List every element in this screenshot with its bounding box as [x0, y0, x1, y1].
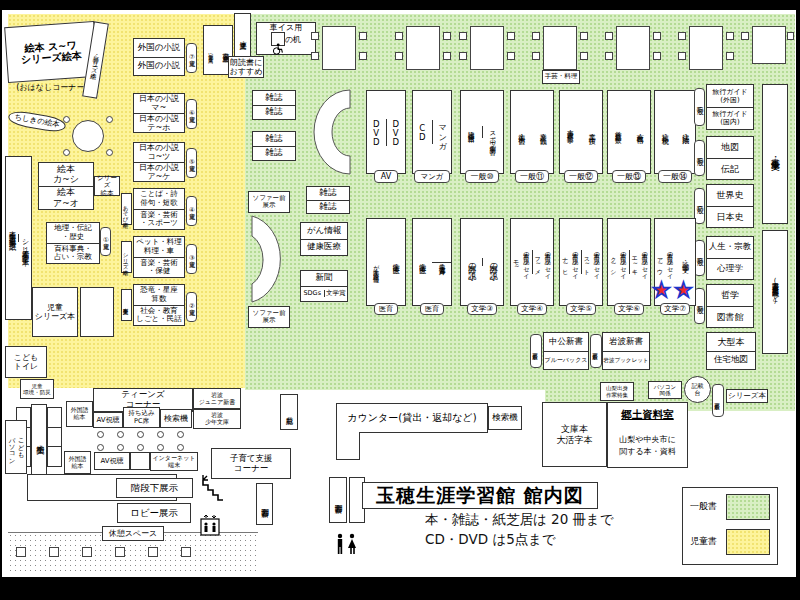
chair	[395, 52, 403, 60]
shelf-iwanami-shinsho: 岩波新書 岩波ブックレット	[602, 332, 650, 370]
shelf-row	[48, 446, 61, 466]
round-table	[72, 120, 104, 152]
tag-ippan15: 一般⑮	[694, 88, 705, 126]
shelf-large-picture-books: 大型絵本	[31, 404, 47, 476]
shelf-row: 中公新書	[544, 333, 588, 351]
pc-related-shelf: パソコン 関係	[648, 381, 682, 399]
shelf-dvd: DVD DVD	[366, 90, 406, 174]
shelf-environment-disaster: 児童 環境・防災	[20, 379, 54, 399]
local-history-title: 郷土資料室	[608, 403, 687, 425]
shelf-series-kamishibai: 紙芝居・大型紙芝居・大型絵本 シリーズ本・点字絵本・布絵本・	[5, 156, 32, 320]
rest-table	[82, 547, 92, 557]
shelf-column: DVD	[367, 119, 386, 146]
rest-table	[148, 547, 158, 557]
shelf-jp-novels-ma: 日本の小説 マ~ 日本の小説 テ~ホ	[133, 93, 185, 133]
map-note-1: 本・雑誌・紙芝居は 20 冊まで	[425, 511, 614, 529]
label-bungaku5: 文学⑤	[566, 303, 596, 315]
shelf-row: 大型本	[707, 333, 755, 351]
shelf-column: がん情報・医療・医学	[367, 259, 386, 265]
chair	[653, 32, 661, 40]
chair	[605, 32, 613, 40]
shelf-magazines: 雑誌 雑誌	[252, 131, 296, 161]
shelf-series-books: シリーズ本	[726, 389, 768, 403]
reading-table	[322, 26, 356, 70]
label-ippan11: 一般⑪	[515, 170, 549, 183]
shelf-row: 旅行ガイド (外国)	[707, 85, 753, 107]
shelf-cancer-health: がん情報 健康医療	[300, 222, 348, 256]
tag-ippan-shinsho: 一般新書	[590, 334, 602, 368]
reading-table	[543, 26, 577, 70]
local-history-desc: 山梨や中央市に 関する本・資料	[608, 425, 687, 467]
tag-jido6: 児童⑥	[186, 99, 197, 129]
chair	[459, 52, 467, 60]
label-ippan10: 一般⑩	[465, 170, 499, 183]
chair	[787, 32, 794, 40]
stool	[137, 431, 144, 438]
shelf-column: 日本の小説・エッセイ エ~キ	[629, 250, 651, 274]
shelf-tax-politics: 税金・福祉 政治・法律	[654, 90, 696, 174]
tag-asobi-ehon: あそび絵本	[121, 193, 132, 225]
bungakusho-label: 文学賞	[324, 290, 348, 297]
kids-toilet: こども トイレ	[5, 346, 47, 378]
shelf-reference-books: 参考図書(図鑑・辞書など)	[762, 230, 788, 354]
label-ippan12: 一般⑫	[564, 170, 598, 183]
label-iiku: 医育	[374, 303, 398, 315]
internet-terminal: インターネット 端末	[150, 452, 198, 471]
shelf-children-series: 児童 シリーズ本	[32, 287, 78, 337]
local-history-room: 郷土資料室 山梨や中央市に 関する本・資料	[607, 402, 688, 468]
craft-cooking-note: 手芸・料理	[542, 70, 580, 84]
shelf-jp-novels-ko: 日本の小説 コ~ツ 日本の小説 ア~ケ	[133, 142, 185, 182]
legend-children-label: 児童書	[690, 535, 717, 548]
stool	[97, 431, 104, 438]
shelf-row	[48, 408, 61, 427]
chair	[395, 32, 403, 40]
tag-jido7: 児童⑦	[186, 43, 197, 73]
av-seat: AV視聴	[94, 452, 130, 470]
shelf-column: 日本の小説・エッセイ ス~ト	[581, 250, 603, 274]
shelf-literature-collection: 文学全集・叢書	[762, 84, 788, 224]
counter-leg	[336, 432, 360, 460]
label-bungaku4: 文学④	[517, 303, 547, 315]
shelf-row: 住宅地図	[707, 351, 755, 370]
tag-series-ehon-2: シリーズ 絵本	[94, 176, 120, 196]
shelf-row: 絵本 ア~オ	[39, 186, 93, 210]
shelf-iwanami-junior: 岩波 ジュニア新書	[193, 388, 241, 409]
shelf-row: 日本の小説 コ~ツ	[134, 143, 184, 162]
chair	[580, 52, 588, 60]
sofa-crescent	[246, 212, 290, 306]
shelf-row: ペット・料理 料理・車	[134, 237, 184, 257]
shelf-new-books: 新刊図書	[256, 483, 273, 525]
shelf-row: 社会・教育 しごと・民話	[134, 305, 184, 326]
shelf-column: シリーズ本・点字絵本・布絵本・	[18, 234, 31, 243]
shelf-row: 雑誌	[307, 187, 349, 200]
wheelchair-icon	[271, 32, 285, 46]
shelf-words-poetry: ことば・詩 俳句・短歌 音楽・芸術 ・スポーツ	[133, 188, 185, 230]
shelf-column: CD	[413, 123, 432, 141]
recommended-readalouds: 朗読書に おすすめ	[228, 56, 264, 78]
wheelchair-desk-label2: の机	[285, 35, 301, 44]
shelf-foreign-novels-children: 外国の小説 外国の小説	[133, 38, 185, 76]
seat-box	[130, 452, 150, 470]
chair	[507, 52, 515, 60]
shelf-row: 健康医療	[301, 239, 347, 256]
shelf-travel-guides: 旅行ガイド (外国) 旅行ガイド (国内)	[706, 84, 754, 130]
shelf-science-education: 数学・自然科学 民俗・教育	[607, 90, 651, 174]
byod-pc-seat: 持ち込み PC席	[123, 407, 160, 428]
shelf-craft-tech: 手芸・料理・家事 技術・工業	[559, 90, 603, 174]
shelf-jp-essay-mo: 日本の小説・エッセイ モ~ 日本の小説・エッセイ フ~メ	[510, 218, 554, 306]
writing-stand: 記載 台	[684, 376, 711, 403]
shelf-foreign-novels: 外国の小説 外国の小説	[460, 218, 504, 306]
search-terminal: 検索機	[160, 409, 192, 428]
shelf-row: ことば・詩 俳句・短歌	[134, 189, 184, 209]
shelf-foreign-picture-books: 外国語 絵本	[66, 401, 93, 427]
shelf-magazines: 雑誌 雑誌	[252, 90, 296, 120]
stool	[177, 444, 184, 451]
elevator-icon	[200, 514, 220, 536]
chair	[678, 32, 686, 40]
chair	[63, 116, 70, 123]
shelf-geography-history: 地理・伝記 ・歴史 百科事典・ 占い・宗教	[46, 222, 100, 264]
writing-stand-2: 記載台	[280, 394, 298, 430]
shelf-philosophy-library: 哲学 図書館	[706, 284, 754, 328]
chair	[443, 52, 451, 60]
label-bungaku6: 文学⑥	[614, 303, 644, 315]
chair	[532, 52, 540, 60]
stool	[177, 431, 184, 438]
shelf-row: 岩波ブックレット	[603, 351, 649, 370]
tag-ippan16: 一般⑯	[694, 140, 705, 176]
shelf-column: 外国の小説	[461, 258, 482, 266]
shelf-column: 外国の小説	[482, 258, 504, 266]
shelf-column: 日本の小説・エッセイ モ~	[511, 250, 532, 274]
chair	[605, 52, 613, 60]
shelf-cd-manga: CD マンガ	[412, 90, 452, 174]
legend-general-label: 一般書	[690, 500, 717, 513]
shelf-dino-math: 恐竜・星座 算数 社会・教育 しごと・民話	[133, 284, 185, 326]
chair	[459, 32, 467, 40]
shelf-cancer-medical: がん情報・医療・医学 医療・医学	[366, 218, 406, 306]
chair	[359, 52, 367, 60]
shelf-row: 日本の小説 ア~ケ	[134, 162, 184, 182]
chair	[741, 32, 749, 40]
shelf-row: 雑誌	[253, 105, 295, 120]
shelf-row: 外国の小説	[134, 57, 184, 76]
shelf-row: 雑誌	[253, 91, 295, 105]
shelf-column: 日本の小説・エッセイ ナ~ヒ	[560, 250, 581, 274]
label-manga: マンガ	[414, 170, 450, 183]
shelf-children-bunko: 児童文庫	[234, 13, 251, 61]
tag-jido4: 児童④	[186, 196, 197, 226]
label-ippan14: 一般⑭	[658, 170, 692, 183]
chair	[63, 149, 70, 156]
reading-table	[406, 26, 440, 70]
search-terminal: 検索機	[488, 406, 522, 430]
star-marker: ★	[674, 280, 693, 301]
shelf-column: 日本の小説・エッセイ ク~シ	[608, 250, 629, 274]
chair	[311, 52, 319, 60]
tag-jido2: 児童②	[186, 292, 197, 322]
shelf-picture-books-main: 絵本 ス~ワ シリーズ絵本	[4, 21, 98, 83]
sofa-crescent	[312, 86, 354, 178]
reading-table	[752, 26, 786, 64]
letterbox-left	[0, 0, 2, 600]
letterbox-bottom	[0, 577, 800, 600]
shelf-row: 旅行ガイド (国内)	[707, 107, 753, 130]
shelf-maps-biography: 地図 伝記	[706, 136, 754, 180]
tag-jido3: 児童③	[186, 244, 197, 274]
map-note-2: CD・DVD は5点まで	[425, 531, 556, 549]
legend-general-swatch	[726, 494, 770, 520]
under-stairs-display: 階段下展示	[116, 478, 193, 498]
star-marker: ★	[652, 280, 671, 301]
shelf-column: スポーツ・音楽・演劇	[482, 126, 504, 138]
rest-table	[49, 547, 59, 557]
label-iiku: 医育	[420, 303, 444, 315]
shelf-row: 百科事典・ 占い・宗教	[47, 243, 99, 264]
sofa-front-display: ソファー前 展示	[248, 191, 290, 213]
legend-children-swatch	[726, 529, 770, 555]
shelf-row: 伝記	[707, 158, 753, 180]
shelf-world-japan-history: 世界史 日本史	[706, 184, 754, 228]
shelf-column: DVD	[386, 119, 406, 146]
reading-table	[616, 26, 650, 70]
shelf-row: 外国の小説	[134, 39, 184, 57]
display-shelves	[80, 287, 114, 337]
tag-series-ehon: シリーズ絵本	[121, 241, 132, 273]
map-title: 玉穂生涯学習館 館内図	[362, 482, 598, 509]
shelf-row: 心理学	[707, 258, 753, 280]
stool	[97, 444, 104, 451]
label-bungaku3: 文学③	[467, 303, 497, 315]
shelf-pets-cooking: ペット・料理 料理・車 音楽・芸術 ・保健	[133, 236, 185, 278]
shelf-jp-essay-na: 日本の小説・エッセイ ナ~ヒ 日本の小説・エッセイ ス~ト	[559, 218, 603, 306]
rest-table	[181, 547, 191, 557]
shelf-row: 哲学	[707, 285, 753, 306]
chair	[443, 32, 451, 40]
chair	[106, 116, 113, 123]
shelf-foreign-picture-books: 外国語 絵本	[64, 451, 91, 474]
shelf-row: 雑誌	[253, 146, 295, 161]
shelf-row: 地図	[707, 137, 753, 158]
sdgs-label: SDGs	[301, 290, 324, 297]
rest-table	[115, 547, 125, 557]
chair	[507, 32, 515, 40]
shelf-column-split: 洋書 育児・医学	[432, 262, 452, 263]
shelf-row: 日本の小説 マ~	[134, 94, 184, 113]
chair	[532, 32, 540, 40]
shelf-row: 人生・宗教	[707, 237, 753, 258]
shelf-column: 日本の小説・エッセイ ア~ウ	[655, 250, 675, 274]
chair	[311, 32, 319, 40]
tag-ippan-shinsho: 一般新書	[530, 334, 542, 368]
shelf-row: 新聞	[301, 271, 347, 286]
shelf-ehon-ka-shi: 絵本 カ~シ 絵本 ア~オ	[38, 162, 94, 210]
stool	[117, 431, 124, 438]
shelf-row: 絵本 カ~シ	[39, 163, 93, 186]
shelf-row: 雑誌	[307, 200, 349, 214]
chair	[359, 32, 367, 40]
stool	[157, 444, 164, 451]
shelf-row: 地理・伝記 ・歴史	[47, 223, 99, 243]
shelf-new-books: 新刊図書	[329, 477, 347, 523]
yamanashi-authors-feature: 山梨出身 作家特集	[600, 382, 634, 401]
reading-table	[689, 26, 723, 70]
counter: カウンター(貸出・返却など)	[336, 403, 488, 433]
tag-jido-ogata: 児童大型本	[121, 289, 132, 321]
chair	[653, 52, 661, 60]
stool	[137, 444, 144, 451]
shelf-bunkobon: 文庫本 大活字本	[542, 402, 607, 467]
shelf-life-religion: 人生・宗教 心理学	[706, 236, 754, 280]
shelf-row	[48, 427, 61, 447]
kids-computer: こども パソコン	[5, 420, 27, 474]
shelf-iwanami-shonen: 岩波 少年文庫	[193, 409, 241, 429]
label-av: AV	[374, 170, 398, 183]
chair	[726, 32, 734, 40]
chair	[726, 52, 734, 60]
shelf-row: 岩波新書	[603, 333, 649, 351]
stool	[117, 444, 124, 451]
shelf-row: ブルーバックス	[544, 351, 588, 370]
shelf-column: 日本の小説・エッセイ フ~メ	[532, 250, 554, 274]
shelf-column: マンガ	[432, 120, 452, 144]
chair	[678, 52, 686, 60]
toilet-icon	[333, 533, 359, 555]
shelf-row: 恐竜・星座 算数	[134, 285, 184, 305]
shelf-column: 青い鳥文庫・他	[204, 48, 218, 53]
shelf-newspaper: 新聞 SDGs 文学賞	[300, 270, 348, 302]
tag-ippan-shinsho: 一般新書	[712, 384, 724, 417]
shelf-medical-childcare: 医療・医学 洋書 育児・医学	[412, 218, 452, 306]
shelf-chuko-shinsho: 中公新書 ブルーバックス	[543, 332, 589, 370]
shelf-art-tourism: 芸術・美術 観光・産業	[510, 90, 554, 174]
rest-space-label: 休憩スペース	[102, 526, 164, 541]
tag-jido5: 児童⑤	[186, 148, 197, 178]
stool	[157, 431, 164, 438]
shelf-row: 音楽・芸術 ・保健	[134, 257, 184, 278]
shelf-jp-essay-ku: 日本の小説・エッセイ ク~シ 日本の小説・エッセイ エ~キ	[607, 218, 651, 306]
rest-table	[16, 547, 26, 557]
letterbox-right	[796, 0, 800, 600]
shelf-row: 日本の小説 テ~ホ	[134, 113, 184, 133]
wheelchair-desk-label1: 車イス用	[270, 23, 302, 32]
shelf-row: 日本史	[707, 206, 753, 228]
letterbox-top	[0, 0, 800, 10]
lobby-display: ロビー展示	[117, 503, 191, 523]
sofa-front-display: ソファー前 展示	[248, 306, 290, 328]
shelf-row: SDGs 文学賞	[301, 286, 347, 302]
label-ippan13: 一般⑬	[612, 170, 646, 183]
shelf-row: がん情報	[301, 223, 347, 239]
shelf-row: 世界史	[707, 185, 753, 206]
shelf-row: 図書館	[707, 306, 753, 328]
shelf-rack	[47, 407, 62, 467]
reading-table	[470, 26, 504, 70]
shelf-large-books-maps: 大型本 住宅地図	[706, 332, 756, 370]
chair	[106, 149, 113, 156]
shelf-magazines: 雑誌 雑誌	[306, 186, 350, 214]
label-bungaku7: 文学⑦	[660, 303, 690, 315]
chair	[580, 32, 588, 40]
shelf-row: 音楽・芸術 ・スポーツ	[134, 209, 184, 230]
stairs-icon	[197, 474, 225, 502]
shelf-cell: 育児・医学	[433, 262, 452, 263]
wheelchair-desk: 車イス用 の机	[256, 22, 316, 55]
av-seat: AV視聴	[93, 412, 123, 428]
shelf-language-sports: 日本語・外国語 スポーツ・音楽・演劇	[460, 90, 504, 174]
shelf-row: 雑誌	[253, 132, 295, 146]
tag-jido1: 児童①	[100, 227, 111, 256]
